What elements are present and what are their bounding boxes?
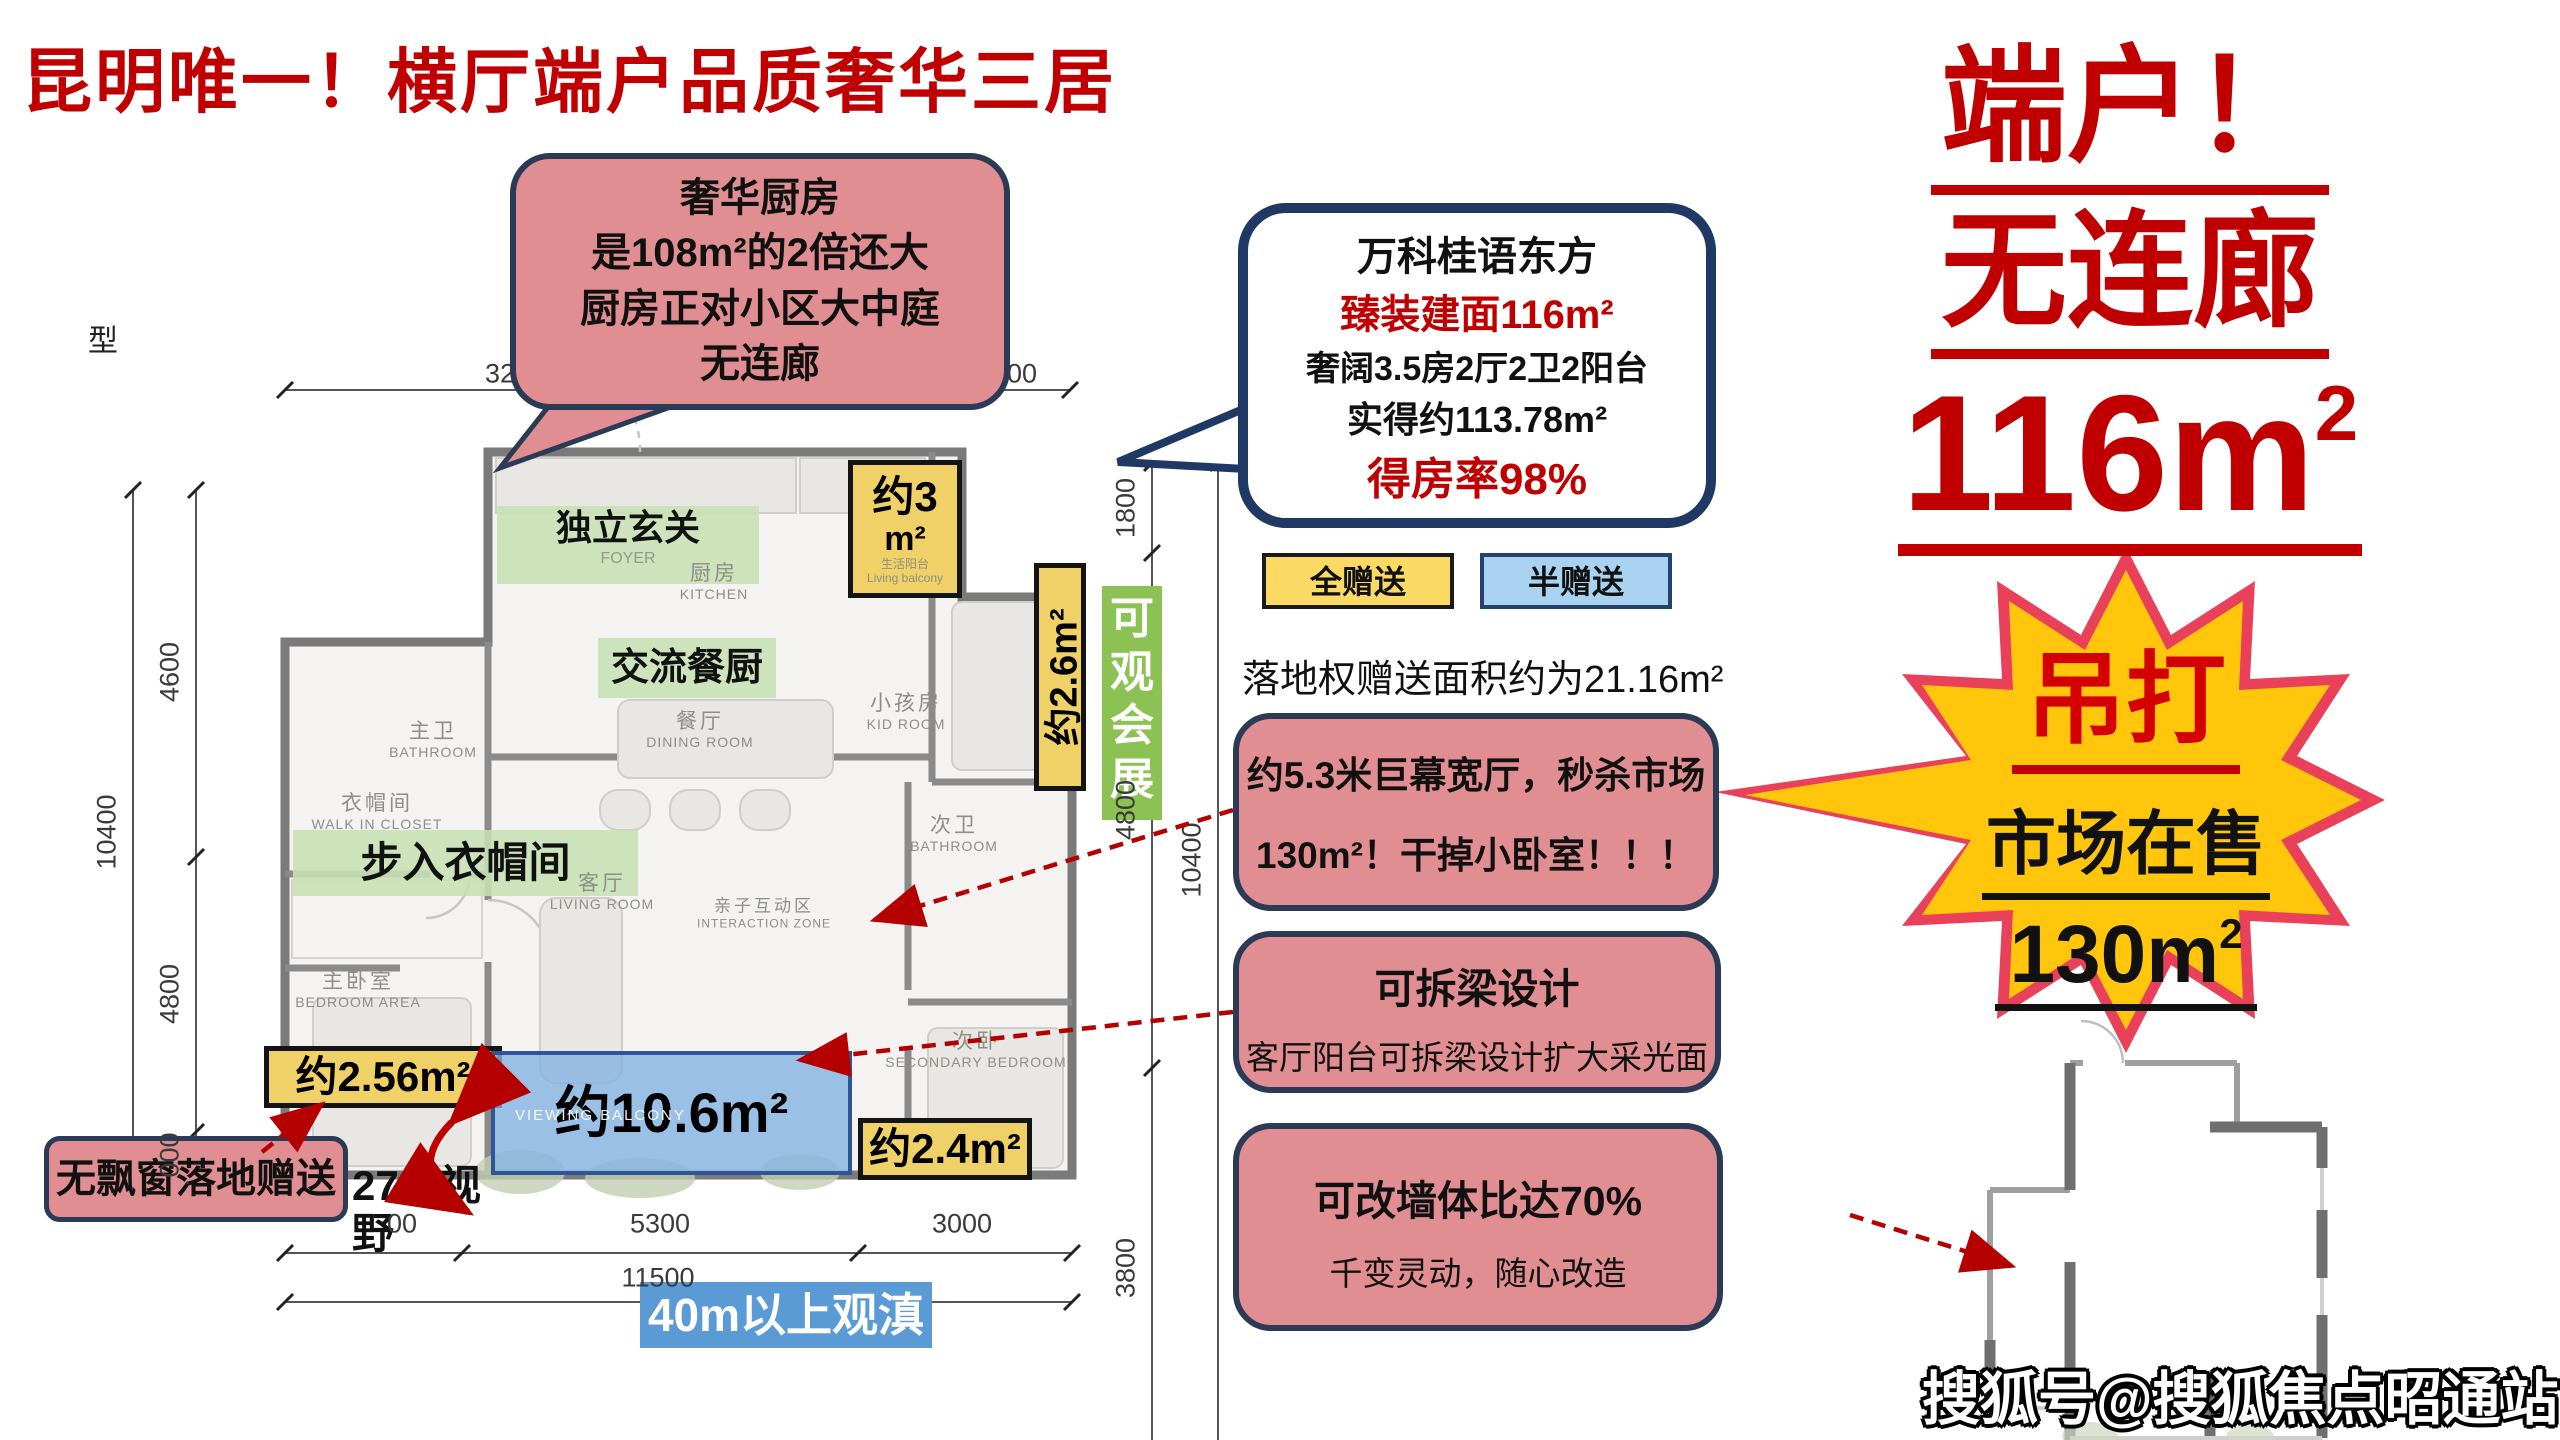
arrow-wall-change: [1850, 1215, 2012, 1266]
closet-room-label: 衣帽间 WALK IN CLOSET: [312, 791, 443, 833]
gift-area-note: 落地权赠送面积约为21.16m²: [1242, 648, 1723, 703]
dim-left-2: 4800: [155, 964, 186, 1024]
kitchen-room-label: 厨房 KITCHEN: [680, 561, 748, 603]
type-char: 型: [88, 316, 118, 360]
viewing-balcony-en: VIEWING BALCONY: [515, 1107, 686, 1124]
view-270-label: 270°视 野: [352, 1162, 522, 1259]
gift-tag-living-balcony: 约3 m² 生活阳台 Living balcony: [848, 460, 962, 598]
legend-full-gift: 全赠送: [1262, 553, 1454, 609]
watermark: 搜狐号@搜狐焦点昭通站: [1922, 1352, 2559, 1436]
page-title: 昆明唯一！横厅端户品质奢华三居: [22, 26, 1117, 127]
project-layout: 奢阔3.5房2厅2卫2阳台: [1252, 341, 1702, 390]
starburst-text: 吊打 市场在售 130m2: [1896, 618, 2356, 1011]
banner-line1: 端户！: [1931, 38, 2329, 195]
master-bed-label: 主卧室 BEDROOM AREA: [295, 969, 421, 1011]
dim-left-3: 000: [155, 1132, 186, 1177]
dim-bottom-1: 00: [387, 1209, 417, 1240]
project-bubble: 万科桂语东方 臻装建面116m² 奢阔3.5房2厅2卫2阳台 实得约113.78…: [1238, 203, 1716, 528]
dim-bottom-3: 3000: [932, 1209, 992, 1240]
starburst-line1: 吊打: [2012, 618, 2240, 774]
viewing-balcony: VIEWING BALCONY 约10.6m²: [491, 1051, 852, 1175]
dim-top-2: 00: [1007, 359, 1037, 390]
living-balcony-room-label: 生活阳台 Living balcony: [853, 557, 957, 585]
starburst-line2: 市场在售: [1982, 788, 2270, 900]
project-rate: 得房率98%: [1252, 443, 1702, 507]
second-bath-label: 次卫 BATHROOM: [910, 813, 998, 855]
dim-right-total: 10400: [1177, 822, 1208, 897]
dim-right-1: 1800: [1111, 478, 1142, 538]
kitchen-callout: 奢华厨房 是108m²的2倍还大 厨房正对小区大中庭 无连廊: [510, 153, 1010, 410]
foyer-label-text: 独立玄关: [497, 506, 759, 550]
interaction-zone-label: 亲子互动区 INTERACTION ZONE: [697, 897, 831, 932]
gift-tag-side: 约2.6m²: [1034, 563, 1086, 791]
dim-bottom-total: 11500: [621, 1263, 694, 1294]
feature-beam-box: 可拆梁设计 客厅阳台可拆梁设计扩大采光面: [1233, 931, 1721, 1093]
master-bath-label: 主卫 BATHROOM: [389, 719, 477, 761]
dining-kitchen-marketing-label: 交流餐厨: [598, 638, 776, 698]
project-area: 臻装建面116m²: [1252, 282, 1702, 340]
right-banner: 端户！ 无连廊 116m2: [1880, 30, 2380, 556]
second-bed-label: 次卧 SECONDARY BEDROOM: [885, 1029, 1066, 1071]
feature-wall-box: 可改墙体比达70% 千变灵动，随心改造: [1233, 1123, 1723, 1331]
dim-left-1: 4600: [155, 642, 186, 702]
feature-wide-hall-box: 约5.3米巨幕宽厅，秒杀市场 130m²！干掉小卧室！！！: [1233, 713, 1719, 911]
legend-half-gift: 半赠送: [1480, 553, 1672, 609]
promo-poster: 独立玄关 FOYER 交流餐厨 衣帽间 WALK IN CLOSET 步入衣帽间…: [0, 0, 2560, 1440]
dim-right-2: 4800: [1111, 780, 1142, 840]
dim-bottom-2: 5300: [630, 1209, 690, 1240]
dim-left-total: 10400: [92, 794, 123, 869]
kid-room-label: 小孩房 KID ROOM: [867, 691, 946, 733]
banner-area: 116m2: [1898, 367, 2362, 556]
banner-line2: 无连廊: [1931, 203, 2329, 360]
dining-room-label: 餐厅 DINING ROOM: [646, 709, 753, 751]
gift-tag-corner-left: 约2.56m²: [264, 1046, 502, 1108]
starburst-area: 130m2: [1995, 908, 2256, 1011]
dim-right-3: 3800: [1111, 1238, 1142, 1298]
gift-tag-corner-right: 约2.4m²: [858, 1118, 1032, 1180]
project-actual-area: 实得约113.78m²: [1252, 391, 1702, 443]
living-room-label: 客厅 LIVING ROOM: [550, 871, 654, 913]
project-name: 万科桂语东方: [1252, 224, 1702, 282]
no-bay-window-box: 无飘窗落地赠送: [44, 1136, 348, 1222]
